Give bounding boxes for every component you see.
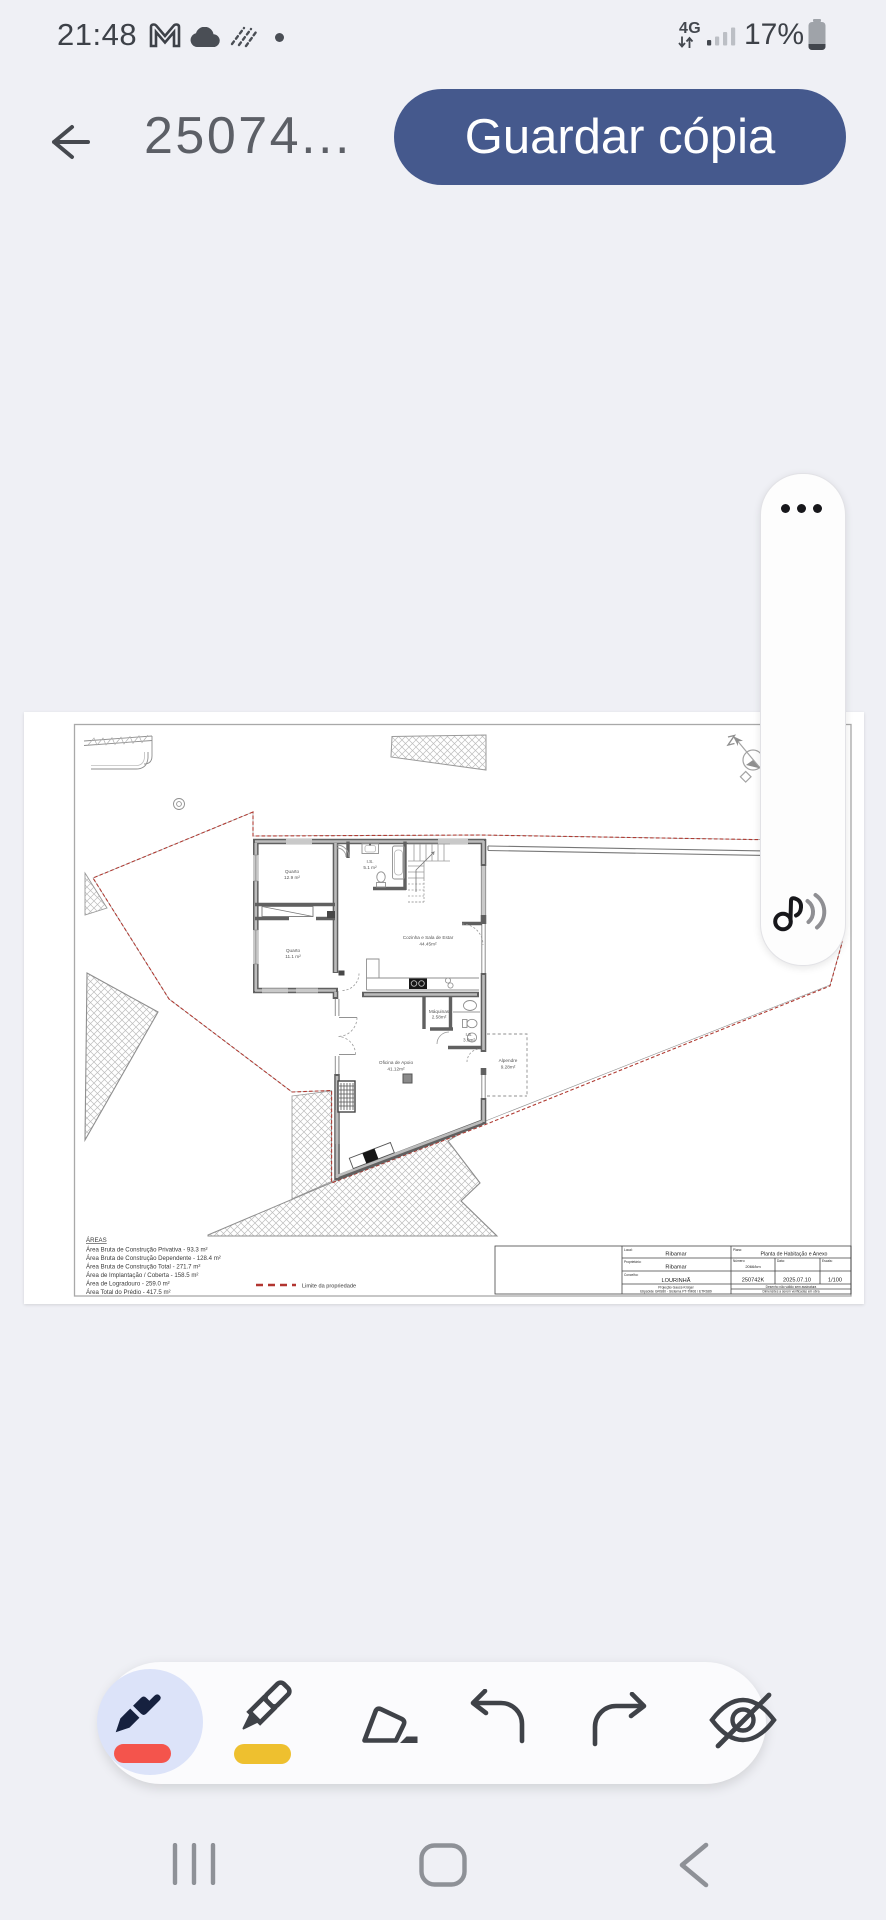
svg-text:2066/km: 2066/km (745, 1264, 761, 1269)
svg-text:Quarto: Quarto (286, 948, 301, 953)
svg-text:Cozinha e Sala de Estar: Cozinha e Sala de Estar (403, 935, 454, 940)
svg-text:Número:: Número: (733, 1259, 745, 1263)
svg-text:9.28m²: 9.28m² (501, 1065, 516, 1070)
svg-text:11.1 m²: 11.1 m² (285, 954, 301, 959)
svg-text:Área Bruta de Construção Total: Área Bruta de Construção Total - 271.7 m… (86, 1264, 200, 1271)
svg-text:12.9 m²: 12.9 m² (284, 875, 300, 880)
svg-text:Limite da propriedade: Limite da propriedade (302, 1284, 356, 1290)
svg-text:Ribamar: Ribamar (665, 1252, 686, 1258)
svg-text:Quarto: Quarto (285, 869, 300, 874)
svg-text:Dimensões a serem verificadas: Dimensões a serem verificadas em obra (762, 1290, 819, 1294)
svg-text:2025.07.10: 2025.07.10 (783, 1278, 811, 1284)
svg-text:Desenho não válido sem assinat: Desenho não válido sem assinatura (766, 1285, 817, 1289)
svg-text:Alpendre: Alpendre (499, 1058, 518, 1063)
svg-text:Máquinas: Máquinas (429, 1009, 450, 1014)
svg-text:Elipsóide GRS80 - Sistema PT-T: Elipsóide GRS80 - Sistema PT-TM06 / ETRS… (640, 1290, 712, 1294)
svg-text:Concelho:: Concelho: (624, 1273, 638, 1277)
svg-text:5.1 m²: 5.1 m² (363, 865, 377, 870)
svg-text:Escala:: Escala: (822, 1259, 833, 1263)
svg-text:Área de Implantação / Coberta: Área de Implantação / Coberta - 158.5 m² (86, 1272, 198, 1279)
svg-text:Planta de Habitação e Anexo: Planta de Habitação e Anexo (761, 1252, 828, 1258)
svg-text:3.0m²: 3.0m² (463, 1038, 475, 1043)
svg-text:Área de Logradouro - 259.0 m²: Área de Logradouro - 259.0 m² (86, 1281, 170, 1288)
svg-text:I.S.: I.S. (366, 859, 373, 864)
svg-text:Área Bruta de Construção Priva: Área Bruta de Construção Privativa - 93.… (86, 1247, 208, 1254)
svg-text:2.58m²: 2.58m² (432, 1015, 447, 1020)
svg-text:1/100: 1/100 (828, 1278, 842, 1284)
svg-text:Área Bruta de Construção Depen: Área Bruta de Construção Dependente - 12… (86, 1255, 221, 1262)
svg-text:Proprietário:: Proprietário: (624, 1260, 641, 1264)
svg-text:Local:: Local: (624, 1248, 633, 1252)
svg-text:41.12m²: 41.12m² (387, 1067, 405, 1072)
svg-text:250742K: 250742K (742, 1278, 765, 1284)
svg-text:ÁREAS: ÁREAS (86, 1237, 107, 1244)
svg-text:I.S.: I.S. (465, 1032, 472, 1037)
svg-text:Data:: Data: (777, 1259, 785, 1263)
svg-text:Ribamar: Ribamar (665, 1265, 686, 1271)
svg-text:44.45m²: 44.45m² (419, 942, 437, 947)
svg-text:Plano:: Plano: (733, 1248, 742, 1252)
svg-text:Oficina de Apoio: Oficina de Apoio (379, 1060, 414, 1065)
svg-text:Área Total do Prédio - 417.5 m: Área Total do Prédio - 417.5 m² (86, 1289, 171, 1296)
svg-text:LOURINHÃ: LOURINHÃ (662, 1277, 691, 1284)
